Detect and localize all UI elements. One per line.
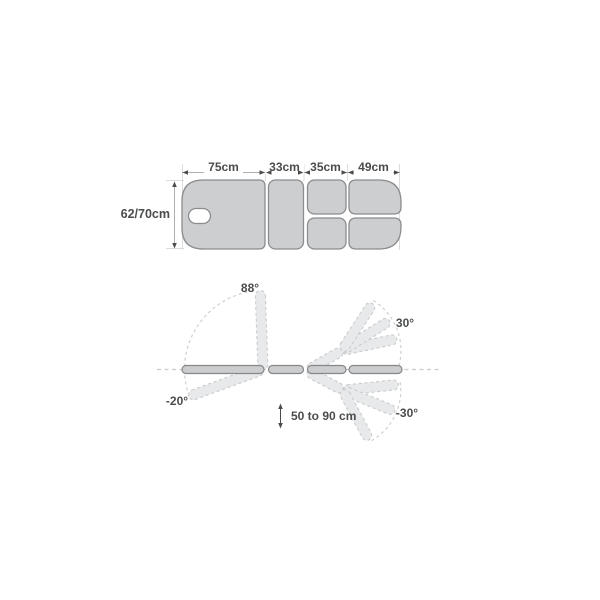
height-indicator: 50 to 90 cm <box>278 404 356 429</box>
width-dimension-label-seat: 33cm <box>269 160 300 174</box>
section-back <box>269 180 304 249</box>
table-width-label: 62/70cm <box>121 207 170 221</box>
ghost-head-raised <box>255 290 268 369</box>
section-thigh-right-half <box>308 218 347 249</box>
height-range-label: 50 to 90 cm <box>291 409 356 423</box>
segment-back-side <box>269 366 304 374</box>
table-segments-side-view <box>182 366 402 374</box>
angle-label-leg-up: 30° <box>396 316 414 330</box>
side-view: 88° -20° 30° -30° 50 to 90 cm <box>157 281 440 442</box>
section-leg-left-half <box>349 180 401 214</box>
width-dimensions: 75cm 33cm 35cm 49cm <box>182 160 400 175</box>
segment-head-side <box>182 366 264 374</box>
section-leg-right-half <box>349 218 401 249</box>
angle-label-leg-down: -30° <box>396 406 418 420</box>
top-view: 75cm 33cm 35cm 49cm 62/70cm <box>121 160 401 250</box>
angle-label-head-up: 88° <box>241 281 259 295</box>
angle-label-head-down: -20° <box>166 394 188 408</box>
diagram-canvas: 75cm 33cm 35cm 49cm 62/70cm <box>0 0 600 600</box>
section-thigh-left-half <box>308 180 347 214</box>
segment-thigh-side <box>308 366 347 374</box>
width-dimension-label-head: 75cm <box>208 160 239 174</box>
face-hole <box>189 209 211 224</box>
width-dimension-label-leg: 49cm <box>358 160 389 174</box>
width-dimension-label-thigh: 35cm <box>310 160 341 174</box>
table-width-dimension: 62/70cm <box>121 182 177 249</box>
treatment-table-diagram: 75cm 33cm 35cm 49cm 62/70cm <box>0 0 600 600</box>
table-sections-top-view <box>182 180 401 249</box>
segment-leg-side <box>349 366 402 374</box>
